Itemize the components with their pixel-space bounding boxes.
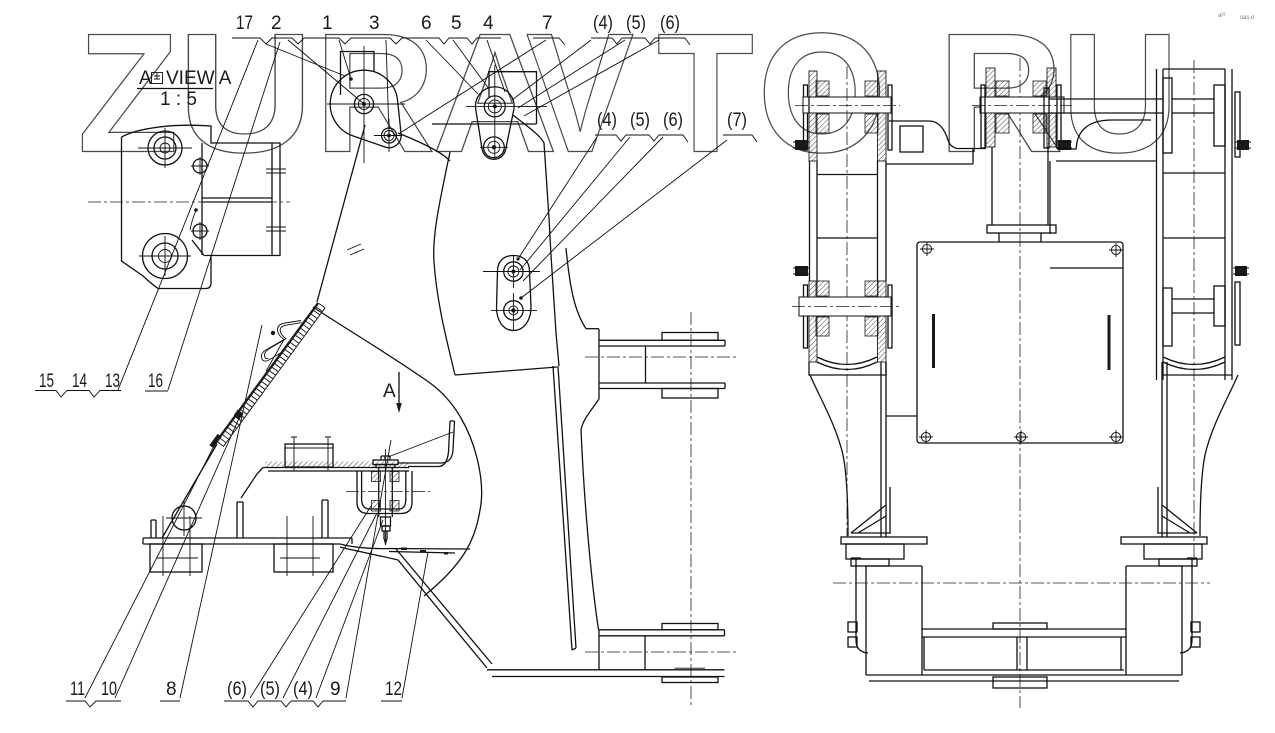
svg-text:1: 1 bbox=[322, 13, 333, 34]
svg-text:8: 8 bbox=[166, 679, 177, 700]
svg-text:5: 5 bbox=[451, 13, 462, 34]
svg-text:1 : 5: 1 : 5 bbox=[160, 89, 197, 110]
svg-text:13: 13 bbox=[105, 371, 120, 392]
svg-text:(6): (6) bbox=[663, 110, 683, 131]
svg-text:11: 11 bbox=[70, 679, 85, 700]
svg-text:(5): (5) bbox=[626, 13, 646, 34]
svg-text:14: 14 bbox=[72, 371, 87, 392]
svg-text:9: 9 bbox=[330, 679, 341, 700]
svg-text:3: 3 bbox=[369, 13, 380, 34]
svg-text:U: U bbox=[1061, 0, 1179, 189]
svg-text:(4): (4) bbox=[593, 13, 613, 34]
svg-text:(5): (5) bbox=[630, 110, 650, 131]
svg-text:sas.o: sas.o bbox=[1240, 15, 1255, 21]
svg-text:12: 12 bbox=[385, 679, 402, 700]
svg-text:(7): (7) bbox=[727, 110, 747, 131]
svg-text:(5): (5) bbox=[260, 679, 280, 700]
svg-text:(4): (4) bbox=[597, 110, 617, 131]
svg-text:6: 6 bbox=[421, 13, 432, 34]
svg-text:16: 16 bbox=[148, 371, 163, 392]
svg-text:17: 17 bbox=[236, 13, 253, 34]
svg-text:VIEW A: VIEW A bbox=[166, 68, 232, 89]
svg-text:A: A bbox=[383, 381, 396, 402]
svg-text:2: 2 bbox=[271, 13, 282, 34]
svg-text:(6): (6) bbox=[660, 13, 680, 34]
svg-text:(4): (4) bbox=[293, 679, 313, 700]
svg-text:10: 10 bbox=[101, 679, 117, 700]
svg-text:a²³: a²³ bbox=[1218, 13, 1225, 19]
svg-text:(6): (6) bbox=[227, 679, 247, 700]
svg-text:15: 15 bbox=[39, 371, 54, 392]
svg-text:7: 7 bbox=[542, 13, 553, 34]
svg-text:4: 4 bbox=[483, 13, 494, 34]
svg-text:A: A bbox=[139, 68, 152, 89]
